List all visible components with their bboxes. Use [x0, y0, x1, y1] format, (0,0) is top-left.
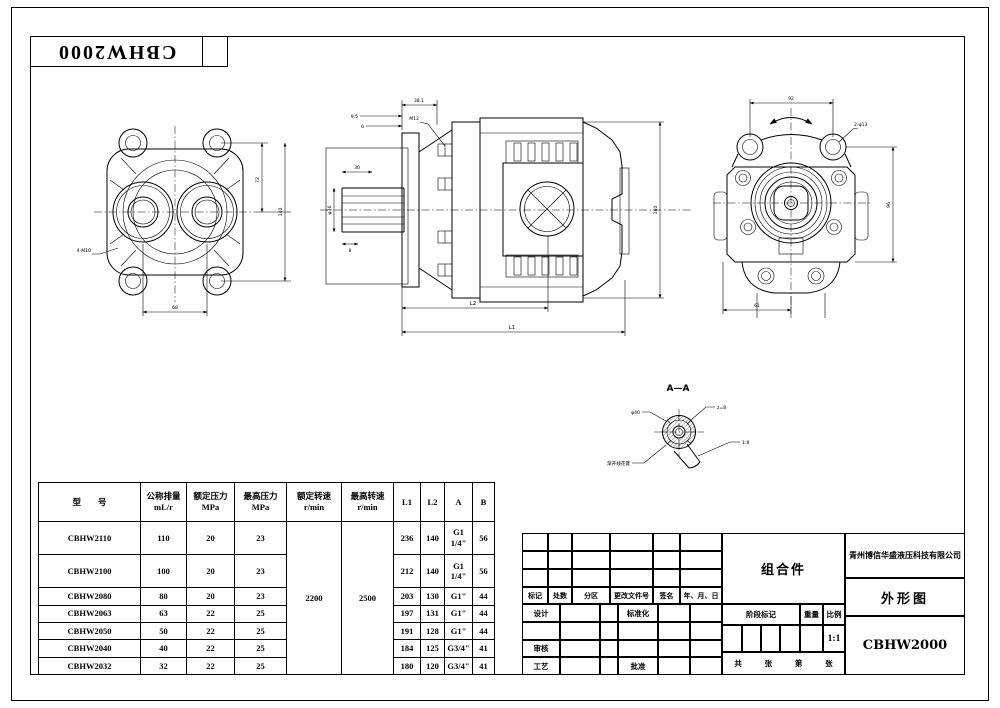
revision-cell [522, 551, 548, 569]
spec-l1: 191 [394, 622, 421, 639]
revision-cell [653, 551, 680, 569]
standardization-sign-cell [658, 604, 690, 622]
rated-speed-value: 2200 [287, 522, 342, 675]
rev-col-sign: 签名 [653, 587, 680, 604]
revision-cell [572, 569, 610, 587]
revision-cell [653, 569, 680, 587]
spec-rated-pressure: 22 [187, 605, 235, 622]
revision-cell [548, 569, 572, 587]
spec-row: CBHW2110110202322002500236140G1 1/4"56 [39, 522, 495, 555]
spec-b: 41 [473, 657, 495, 674]
design-sign-cell [560, 604, 600, 622]
spec-l2: 128 [421, 622, 445, 639]
stage-mark-cell-3 [761, 625, 780, 652]
revision-cell [572, 533, 610, 551]
sheets-total-label: 共 [734, 658, 742, 669]
spec-l2: 120 [421, 657, 445, 674]
spec-b: 56 [473, 522, 495, 555]
spec-model: CBHW2100 [39, 555, 141, 588]
spec-model: CBHW2080 [39, 588, 141, 605]
col-b: B [473, 483, 495, 522]
blank-row-cell-6 [690, 622, 722, 640]
spec-max-pressure: 25 [235, 605, 287, 622]
spec-max-pressure: 25 [235, 622, 287, 639]
approve-sign-cell [658, 657, 690, 675]
spec-l1: 212 [394, 555, 421, 588]
review-sign-cell [560, 640, 600, 657]
revision-grid [522, 533, 722, 587]
spec-model: CBHW2063 [39, 605, 141, 622]
drawing-name-cell: 外形图 [845, 578, 965, 616]
spec-l2: 140 [421, 522, 445, 555]
spec-rated-pressure: 22 [187, 657, 235, 674]
spec-l1: 184 [394, 640, 421, 657]
review-cell-6 [690, 640, 722, 657]
spec-displacement: 32 [141, 657, 187, 674]
review-label: 审核 [522, 640, 560, 657]
scale-label: 比例 [823, 604, 845, 625]
spec-displacement: 80 [141, 588, 187, 605]
col-rated-speed: 额定转速r/min [287, 483, 342, 522]
spec-max-pressure: 23 [235, 522, 287, 555]
standardization-label: 标准化 [618, 604, 658, 622]
spec-row: CBHW2080802023203130G1"44 [39, 588, 495, 605]
spec-l2: 130 [421, 588, 445, 605]
blank-row-cell-2 [560, 622, 600, 640]
sheet-no-label: 第 [795, 658, 803, 669]
spec-a: G1" [445, 605, 473, 622]
spec-l1: 236 [394, 522, 421, 555]
revision-cell [653, 533, 680, 551]
spec-a: G3/4" [445, 640, 473, 657]
spec-rated-pressure: 20 [187, 522, 235, 555]
spec-a: G1 1/4" [445, 555, 473, 588]
stage-mark-cell-1 [722, 625, 742, 652]
revision-cell [680, 569, 722, 587]
stage-mark-cell-4 [780, 625, 800, 652]
revision-cell [610, 533, 653, 551]
col-model: 型 号 [39, 483, 141, 522]
design-date-cell [600, 604, 618, 622]
spec-l1: 203 [394, 588, 421, 605]
col-rated-pressure: 额定压力MPa [187, 483, 235, 522]
spec-rated-pressure: 22 [187, 640, 235, 657]
spec-a: G1" [445, 588, 473, 605]
spec-row: CBHW2040402225184125G3/4"41 [39, 640, 495, 657]
spec-model: CBHW2110 [39, 522, 141, 555]
blank-row-cell-4 [618, 622, 658, 640]
spec-model: CBHW2050 [39, 622, 141, 639]
spec-l1: 180 [394, 657, 421, 674]
spec-l2: 140 [421, 555, 445, 588]
review-cell-5 [658, 640, 690, 657]
spec-displacement: 40 [141, 640, 187, 657]
sheet-no-unit: 张 [825, 658, 833, 669]
process-cell-3 [600, 657, 618, 675]
spec-table-body: CBHW2110110202322002500236140G1 1/4"56CB… [39, 522, 495, 675]
process-sign-cell [560, 657, 600, 675]
spec-rated-pressure: 22 [187, 622, 235, 639]
spec-displacement: 100 [141, 555, 187, 588]
spec-l1: 197 [394, 605, 421, 622]
spec-l2: 125 [421, 640, 445, 657]
spec-rated-pressure: 20 [187, 588, 235, 605]
weight-value-cell [800, 625, 823, 652]
revision-cell [680, 551, 722, 569]
approve-label: 批准 [618, 657, 658, 675]
stage-mark-cell-2 [742, 625, 761, 652]
spec-b: 44 [473, 622, 495, 639]
spec-b: 41 [473, 640, 495, 657]
standardization-date-cell [690, 604, 722, 622]
spec-b: 44 [473, 605, 495, 622]
spec-l2: 131 [421, 605, 445, 622]
company-cell: 青州博信华盛液压科技有限公司 [845, 533, 965, 578]
model-cell: CBHW2000 [845, 616, 965, 675]
stage-mark-label: 阶段标记 [722, 604, 800, 625]
spec-row: CBHW2032322225180120G3/4"41 [39, 657, 495, 674]
sheets-cell: 共 张 第 张 [722, 652, 845, 675]
spec-row: CBHW21001002023212140G1 1/4"56 [39, 555, 495, 588]
revision-cell [610, 569, 653, 587]
revision-cell [572, 551, 610, 569]
col-a: A [445, 483, 473, 522]
spec-row: CBHW2063632225197131G1"44 [39, 605, 495, 622]
spec-displacement: 50 [141, 622, 187, 639]
spec-a: G1 1/4" [445, 522, 473, 555]
rev-col-mark: 标记 [522, 587, 548, 604]
spec-rated-pressure: 20 [187, 555, 235, 588]
col-displacement: 公称排量mL/r [141, 483, 187, 522]
revision-cell [522, 533, 548, 551]
series-label: CBHW2000 [57, 40, 176, 63]
spec-max-pressure: 25 [235, 640, 287, 657]
title-block: 标记 处数 分区 更改文件号 签名 年、月、日 设计 标准化 审核 工艺 批准 … [522, 533, 965, 675]
series-title-strip-ext [202, 36, 228, 67]
revision-cell [548, 551, 572, 569]
process-label: 工艺 [522, 657, 560, 675]
spec-model: CBHW2032 [39, 657, 141, 674]
spec-displacement: 63 [141, 605, 187, 622]
spec-b: 56 [473, 555, 495, 588]
spec-a: G1" [445, 622, 473, 639]
design-label: 设计 [522, 604, 560, 622]
blank-row-cell-5 [658, 622, 690, 640]
drawing-sheet: { "frame": { "series_label": "CBHW2000" … [0, 0, 1000, 708]
weight-label: 重量 [800, 604, 823, 625]
col-l2: L2 [421, 483, 445, 522]
spec-max-pressure: 25 [235, 657, 287, 674]
spec-a: G3/4" [445, 657, 473, 674]
spec-b: 44 [473, 588, 495, 605]
col-max-speed: 最高转速r/min [342, 483, 394, 522]
rev-col-zone: 分区 [572, 587, 610, 604]
spec-row: CBHW2050502225191128G1"44 [39, 622, 495, 639]
blank-row-cell-1 [522, 622, 560, 640]
part-name-cell: 组合件 [722, 533, 845, 604]
spec-table: 型 号 公称排量mL/r 额定压力MPa 最高压力MPa 额定转速r/min 最… [38, 482, 495, 675]
col-l1: L1 [394, 483, 421, 522]
blank-row-cell-3 [600, 622, 618, 640]
sheets-total-unit: 张 [765, 658, 773, 669]
revision-cell [548, 533, 572, 551]
revision-cell [680, 533, 722, 551]
review-cell-3 [600, 640, 618, 657]
revision-cell [522, 569, 548, 587]
revision-cell [610, 551, 653, 569]
review-cell-4 [618, 640, 658, 657]
series-title-strip: CBHW2000 [30, 36, 203, 67]
spec-model: CBHW2040 [39, 640, 141, 657]
rev-col-count: 处数 [548, 587, 572, 604]
approve-date-cell [690, 657, 722, 675]
spec-max-pressure: 23 [235, 588, 287, 605]
spec-max-pressure: 23 [235, 555, 287, 588]
rev-col-fileno: 更改文件号 [610, 587, 653, 604]
scale-value-cell: 1:1 [823, 625, 845, 652]
max-speed-value: 2500 [342, 522, 394, 675]
revision-header-row: 标记 处数 分区 更改文件号 签名 年、月、日 [522, 587, 722, 604]
col-max-pressure: 最高压力MPa [235, 483, 287, 522]
spec-displacement: 110 [141, 522, 187, 555]
rev-col-date: 年、月、日 [680, 587, 722, 604]
